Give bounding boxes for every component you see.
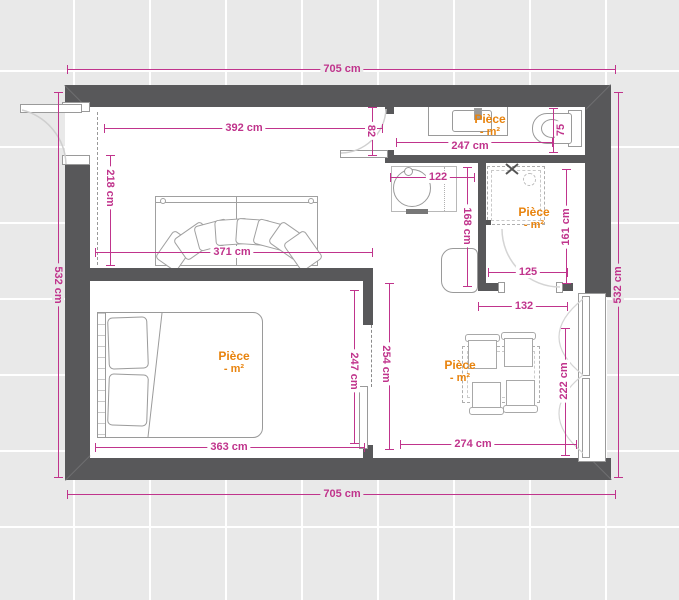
room-label-shower: Pièce - m² bbox=[503, 206, 565, 232]
dim-hall-height: 168 cm bbox=[461, 204, 473, 247]
dim-line-bath-depth bbox=[553, 108, 554, 153]
wall-bathroom-south bbox=[385, 155, 585, 163]
room-area: - m² bbox=[503, 219, 565, 232]
wall-bedroom-east-upper bbox=[363, 268, 373, 325]
dim-living-left: 218 cm bbox=[104, 166, 116, 209]
room-area: - m² bbox=[429, 372, 491, 385]
dim-basin: 122 bbox=[426, 171, 450, 183]
dim-dining-bottom: 274 cm bbox=[451, 438, 494, 450]
dim-shower-width: 125 bbox=[516, 266, 540, 278]
dim-bedroom-opening: 254 cm bbox=[380, 342, 392, 385]
wall-right bbox=[585, 85, 611, 297]
dim-bath-width: 247 cm bbox=[448, 140, 491, 152]
dim-bath-depth: 75 bbox=[555, 121, 567, 139]
room-label-dining: Pièce - m² bbox=[429, 359, 491, 385]
wall-bedroom-north bbox=[65, 268, 373, 281]
dim-bedroom-bottom: 363 cm bbox=[207, 441, 250, 453]
wall-top bbox=[65, 85, 611, 107]
wall-bottom bbox=[65, 458, 611, 480]
dim-outer-top: 705 cm bbox=[320, 63, 363, 75]
wall-shower-west bbox=[478, 163, 486, 291]
dim-outer-left: 532 cm bbox=[52, 263, 64, 306]
dim-outer-bottom: 705 cm bbox=[320, 488, 363, 500]
floor-plan-canvas: 705 cm 705 cm 532 cm 532 cm 392 cm 218 c… bbox=[0, 0, 679, 600]
dim-living-bottom: 371 cm bbox=[210, 246, 253, 258]
dim-outer-right: 532 cm bbox=[612, 263, 624, 306]
reference-line bbox=[97, 112, 98, 265]
dim-shower-outer: 132 bbox=[512, 300, 536, 312]
dim-bedroom-right: 247 cm bbox=[348, 349, 360, 392]
room-name: Pièce bbox=[203, 350, 265, 363]
room-area: - m² bbox=[459, 126, 521, 139]
room-name: Pièce bbox=[459, 113, 521, 126]
room-label-bathroom: Pièce - m² bbox=[459, 113, 521, 139]
room-label-bedroom: Pièce - m² bbox=[203, 350, 265, 376]
room-name: Pièce bbox=[429, 359, 491, 372]
dim-living-door: 82 bbox=[365, 122, 377, 140]
wall-left-lower bbox=[65, 157, 90, 480]
dim-window-width: 222 cm bbox=[558, 359, 570, 402]
room-area: - m² bbox=[203, 363, 265, 376]
dim-living-top: 392 cm bbox=[222, 122, 265, 134]
room-name: Pièce bbox=[503, 206, 565, 219]
wall-bathroom-partition-upper bbox=[385, 107, 394, 114]
